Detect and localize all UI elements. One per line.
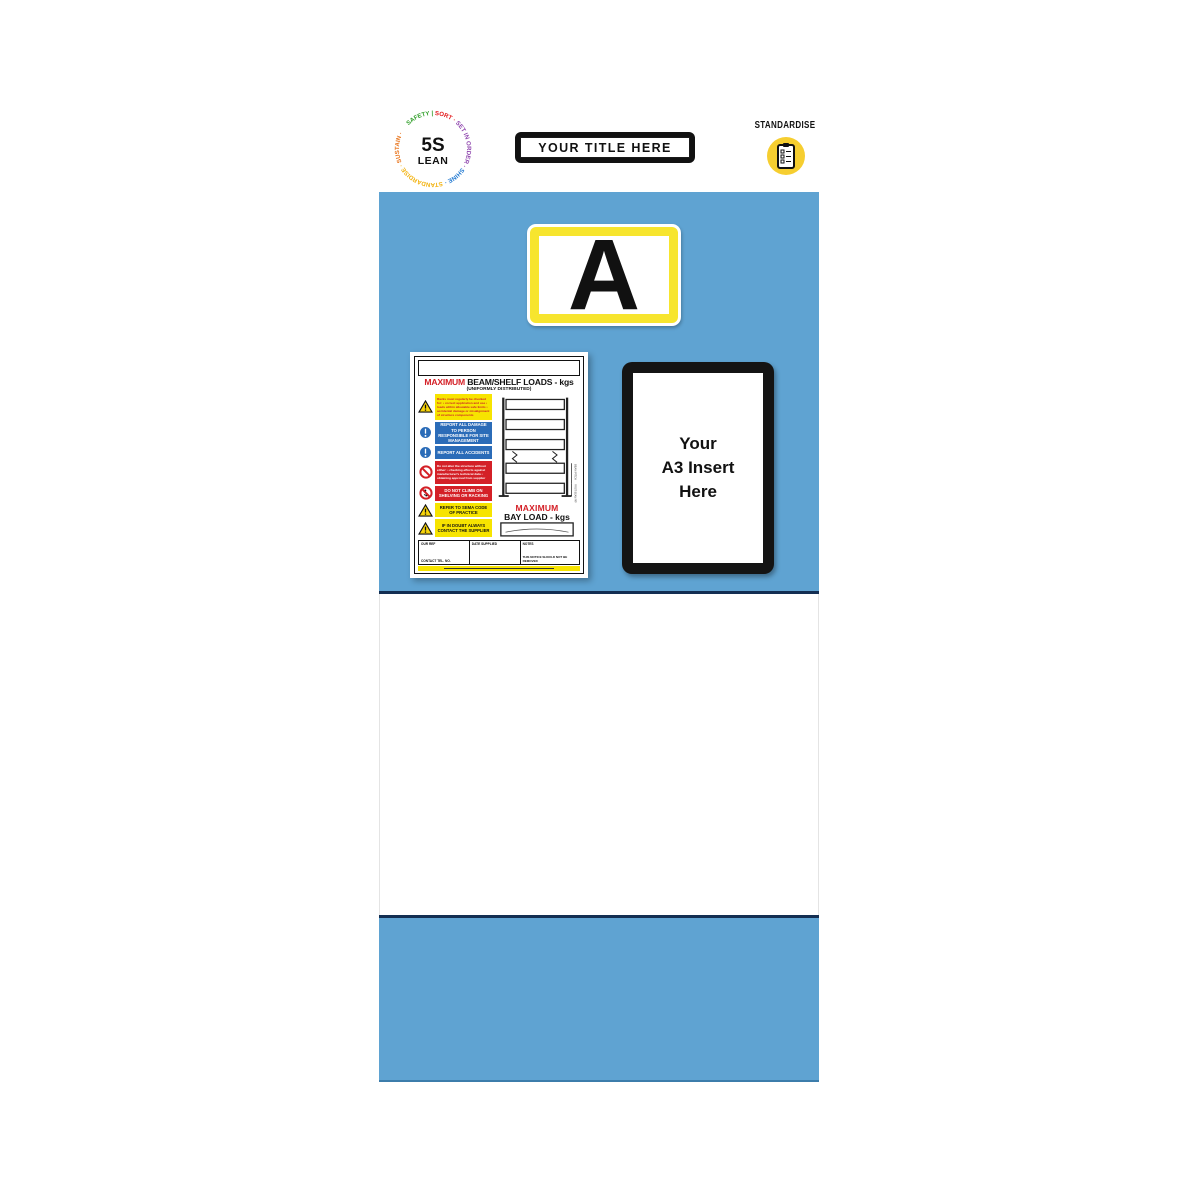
warning-triangle-icon xyxy=(418,394,433,420)
notice-row-text: IF IN DOUBT ALWAYS CONTACT THE SUPPLIER xyxy=(437,523,490,534)
do-not-remove-warning: THIS NOTICE SHOULD NOT BE REMOVED xyxy=(523,555,577,563)
notice-left-column: Racks must regularly be checked for: • c… xyxy=(418,394,492,537)
bay-load-diagram xyxy=(497,522,577,537)
notice-row: REPORT ALL ACCIDENTS xyxy=(418,446,492,459)
bay-load-title: MAXIMUM BAY LOAD - kgs xyxy=(504,504,570,522)
notice-row: DO NOT CLIMB ON SHELVING OR RACKING xyxy=(418,486,492,502)
beam-pitch-label: BEAM PITCH xyxy=(573,464,577,480)
title-plate: YOUR TITLE HERE xyxy=(515,132,695,163)
load-notice-inner: MAXIMUM BEAM/SHELF LOADS - kgs (UNIFORML… xyxy=(414,356,584,574)
load-notice-poster: MAXIMUM BEAM/SHELF LOADS - kgs (UNIFORML… xyxy=(410,352,588,578)
notice-title-maximum: MAXIMUM xyxy=(424,377,465,387)
notice-subtitle: (UNIFORMLY DISTRIBUTED) xyxy=(418,387,580,392)
location-letter-card: A xyxy=(527,224,681,326)
standardise-badge xyxy=(767,137,805,175)
notice-row: IF IN DOUBT ALWAYS CONTACT THE SUPPLIER xyxy=(418,519,492,537)
notice-row-text: REFER TO SEMA CODE OF PRACTICE xyxy=(437,505,490,516)
rack-diagram: BEAM PITCH FIRST BEAM PITCH xyxy=(494,394,580,503)
notice-row: Racks must regularly be checked for: • c… xyxy=(418,394,492,420)
notice-header-box xyxy=(418,360,580,376)
standardise-label: STANDARDISE xyxy=(751,120,820,131)
a3-insert-text: Your A3 Insert Here xyxy=(662,432,735,503)
title-plate-field: YOUR TITLE HERE xyxy=(520,137,690,158)
notice-title: MAXIMUM BEAM/SHELF LOADS - kgs xyxy=(418,378,580,387)
fine-print-line xyxy=(444,568,554,569)
notice-title-rest: BEAM/SHELF LOADS - kgs xyxy=(465,377,574,387)
ring-word-set-in-order: SET IN ORDER · xyxy=(454,120,472,171)
notice-row-text: REPORT ALL ACCIDENTS xyxy=(438,450,490,455)
no-climbing-icon xyxy=(418,486,433,502)
notice-row-text: REPORT ALL DAMAGE TO PERSON RESPONSIBLE … xyxy=(437,422,490,443)
middle-white-section xyxy=(379,594,819,915)
fine-print-strip xyxy=(418,566,580,571)
prohibition-icon xyxy=(418,461,433,484)
bay-load-rest: BAY LOAD - kgs xyxy=(504,513,570,522)
contact-tel-label: CONTACT TEL. NO. xyxy=(421,559,467,563)
a3-insert-line2: A3 Insert xyxy=(662,456,735,480)
footer-cell-notes: NOTES THIS NOTICE SHOULD NOT BE REMOVED xyxy=(521,541,579,564)
ring-word-sustain: SUSTAIN · xyxy=(394,131,405,164)
notice-right-column: BEAM PITCH FIRST BEAM PITCH MAXIMUM BAY … xyxy=(494,394,580,537)
notice-row: REPORT ALL DAMAGE TO PERSON RESPONSIBLE … xyxy=(418,422,492,444)
mandatory-exclamation-icon xyxy=(418,422,433,444)
notice-row-text: DO NOT CLIMB ON SHELVING OR RACKING xyxy=(437,488,490,499)
a3-insert-line3: Here xyxy=(662,480,735,504)
notice-main: Racks must regularly be checked for: • c… xyxy=(418,394,580,537)
warning-triangle-icon xyxy=(418,519,433,537)
notice-footer: OUR REF CONTACT TEL. NO. DATE SUPPLIED N… xyxy=(418,540,580,565)
first-beam-pitch-label: FIRST BEAM PITCH xyxy=(573,484,576,503)
ring-word-shine: SHINE · xyxy=(442,167,466,187)
ring-word-safety: SAFETY | xyxy=(405,110,435,127)
5s-lean-logo: SAFETY | SORT · SET IN ORDER · SHINE · S… xyxy=(387,103,479,195)
warning-triangle-icon xyxy=(418,503,433,517)
our-ref-label: OUR REF xyxy=(421,542,467,546)
logo-lean-text: LEAN xyxy=(418,155,449,167)
notice-row-text: Racks must regularly be checked for: • c… xyxy=(437,397,490,417)
location-card-yellow-border: A xyxy=(530,227,678,323)
ring-word-sort: SORT · xyxy=(435,110,459,125)
footer-cell-our-ref: OUR REF CONTACT TEL. NO. xyxy=(419,541,470,564)
footer-cell-date-supplied: DATE SUPPLIED xyxy=(470,541,521,564)
notice-row-text: Do not alter the structure without eithe… xyxy=(437,464,490,480)
title-plate-label: YOUR TITLE HERE xyxy=(538,141,672,155)
product-image: SAFETY | SORT · SET IN ORDER · SHINE · S… xyxy=(0,0,1200,1200)
notes-label: NOTES xyxy=(523,542,577,546)
a3-insert-frame: Your A3 Insert Here xyxy=(622,362,774,574)
date-supplied-label: DATE SUPPLIED xyxy=(472,542,518,546)
bottom-blue-panel xyxy=(379,915,819,1082)
logo-5s-text: 5S xyxy=(421,135,444,156)
location-letter: A xyxy=(568,236,640,314)
location-card-field: A xyxy=(539,236,669,314)
checklist-clipboard-icon xyxy=(775,142,797,170)
a3-insert-line1: Your xyxy=(662,432,735,456)
notice-row: REFER TO SEMA CODE OF PRACTICE xyxy=(418,503,492,517)
notice-row: Do not alter the structure without eithe… xyxy=(418,461,492,484)
mandatory-exclamation-icon xyxy=(418,446,433,459)
